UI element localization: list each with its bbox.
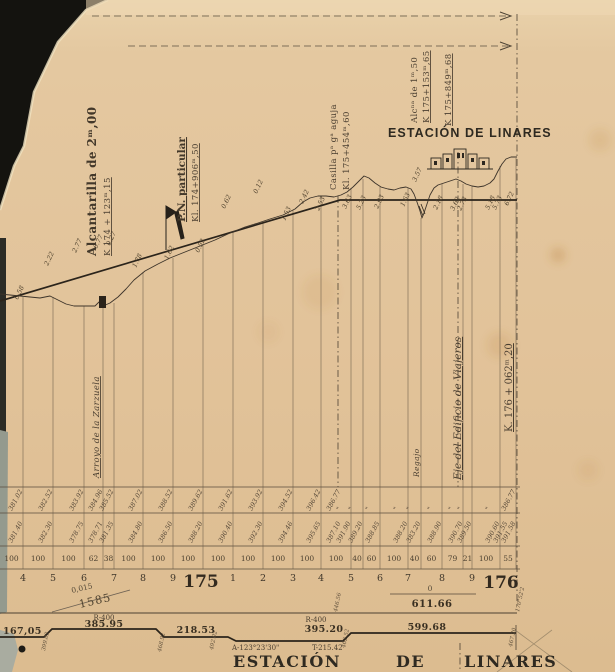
distance-value: 100 [151, 554, 166, 563]
profile-drawing-svg: 0.582.222.770.770.271.781.620.520.620.12… [0, 0, 615, 672]
distance-value: 100 [329, 554, 344, 563]
label-k849: K 175+849ᵐ,68 [444, 53, 454, 126]
align-straight3: 599.68 [408, 622, 447, 633]
hectometre-number: 3 [290, 573, 296, 584]
align-curve1-length: 385.95 [85, 619, 124, 630]
distance-value: 100 [121, 554, 136, 563]
distance-value: 100 [300, 554, 315, 563]
label-casilla-km: Kl. 175+454ᵐ,60 [342, 111, 352, 190]
hectometre-number: 4 [20, 573, 26, 584]
label-alcna1-name: Alcⁿᵃ de 1ᵐ,50 [410, 57, 420, 124]
hectometre-number: 2 [260, 573, 266, 584]
label-casilla-name: Casilla pᵃ gᵃ aguja [329, 104, 339, 190]
km-post-176: 176 [483, 573, 519, 593]
align-curve2-length: 395.20 [305, 624, 344, 635]
label-alcna1-km: K 175+153ᵐ,65 [422, 50, 432, 123]
distance-value: 100 [387, 554, 402, 563]
paper-sheet [0, 0, 615, 672]
distance-value: 79 [448, 554, 458, 563]
gradient-right-length: 611.66 [412, 599, 453, 610]
ink-dot [19, 646, 26, 653]
distance-value: 100 [61, 554, 76, 563]
bottom-title-de: DE [396, 652, 425, 671]
km-post-175: 175 [183, 572, 219, 592]
distance-value: 100 [4, 554, 19, 563]
label-alcantarilla2-km: K 174 + 123ᵐ,15 [103, 177, 113, 256]
fold-light-band [86, 0, 615, 15]
distance-value: 21 [463, 554, 473, 563]
label-regajo: Regajo [412, 448, 421, 478]
hectometre-number: 7 [111, 573, 117, 584]
bottom-title-estacion: ESTACIÓN [233, 651, 341, 671]
label-k176: K. 176 + 062ᵐ,20 [504, 343, 515, 432]
label-eje-edificio: Eje del Edificio de Viajeros [452, 336, 464, 481]
distance-value: 100 [31, 554, 46, 563]
distance-value: 100 [181, 554, 196, 563]
distance-value: 60 [367, 554, 377, 563]
hectometre-number: 8 [140, 573, 146, 584]
hectometre-number: 9 [469, 573, 475, 584]
left-edge-dark-sliver [0, 238, 6, 433]
label-pn-name: P.N. particular [176, 137, 188, 222]
label-arroyo: Arroyo de la Zarzuela [92, 376, 102, 479]
bottom-title-linares: LINARES [464, 652, 557, 671]
culvert-symbol [99, 296, 106, 308]
align-curve2-radius: R-400 [306, 616, 327, 624]
hectometre-number: 4 [318, 573, 324, 584]
distance-value: 100 [211, 554, 226, 563]
hectometre-number: 9 [170, 573, 176, 584]
station-stamp: ESTACIÓN DE LINARES [388, 125, 552, 140]
hectometre-number: 8 [439, 573, 445, 584]
hectometre-number: 5 [50, 573, 56, 584]
distance-value: 40 [410, 554, 420, 563]
align-curve2-tangent: T-215.42 [312, 644, 343, 652]
distance-value: 40 [352, 554, 362, 563]
hectometre-number: 6 [377, 573, 383, 584]
distance-value: 60 [427, 554, 437, 563]
distance-value: 62 [89, 554, 99, 563]
hectometre-number: 7 [405, 573, 411, 584]
distance-value: 100 [479, 554, 494, 563]
left-edge-gray-sliver [0, 430, 8, 614]
hectometre-number: 5 [348, 573, 354, 584]
distance-value: 100 [271, 554, 286, 563]
label-pn-km: Kl. 174+906ᵐ,50 [191, 143, 201, 222]
align-straight1: 167,05 [3, 626, 42, 637]
align-curve2-angle: A-123°23'30" [231, 644, 279, 652]
distance-value: 100 [241, 554, 256, 563]
gradient-right-slope: 0 [428, 584, 433, 593]
hectometre-number: 1 [230, 573, 236, 584]
distance-value: 55 [503, 554, 513, 563]
align-straight2: 218.53 [177, 625, 216, 636]
distance-value: 38 [104, 554, 114, 563]
label-alcantarilla2-name: Alcantarilla de 2ᵐ,00 [85, 106, 99, 257]
